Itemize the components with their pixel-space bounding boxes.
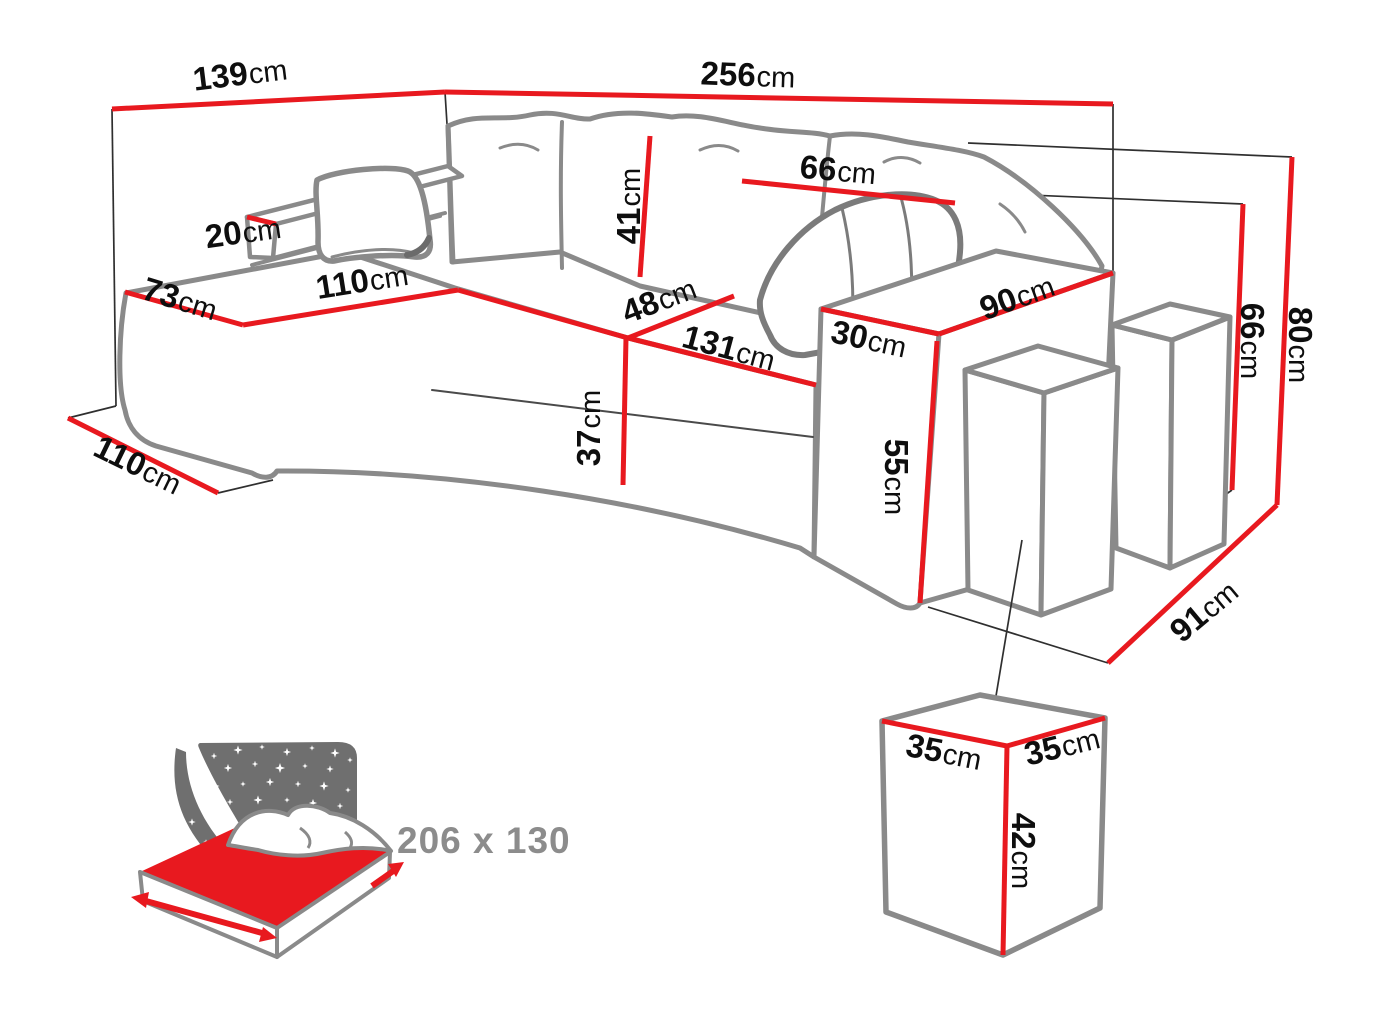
corner-sofa-line-drawing (120, 113, 1230, 615)
dim-label-armrest-height: 55cm (879, 439, 913, 515)
dim-label-backrest-height: 66cm (1235, 303, 1269, 379)
small-pillow (316, 168, 430, 261)
dimension-diagram: 139cm 256cm 66cm 41cm 20cm 73cm 110cm 48… (0, 0, 1380, 1035)
dim-label-back-cushion-height: 41cm (612, 168, 646, 244)
dim-label-back-cushion-width: 66cm (798, 150, 877, 191)
dim-label-total-height: 80cm (1283, 307, 1317, 383)
dim-label-seat-height: 37cm (572, 390, 606, 466)
sofa-diagram-canvas (0, 0, 1380, 1035)
dim-line-139 (112, 92, 445, 109)
sleep-function-bed-icon (131, 742, 404, 957)
dim-line-37 (623, 338, 626, 485)
dim-label-pouf-height: 42cm (1006, 813, 1040, 889)
sleeping-area-dimensions: 206 x 130 (397, 822, 571, 859)
dim-label-back-width-top: 256cm (700, 56, 796, 93)
cushion-divider (561, 122, 562, 268)
